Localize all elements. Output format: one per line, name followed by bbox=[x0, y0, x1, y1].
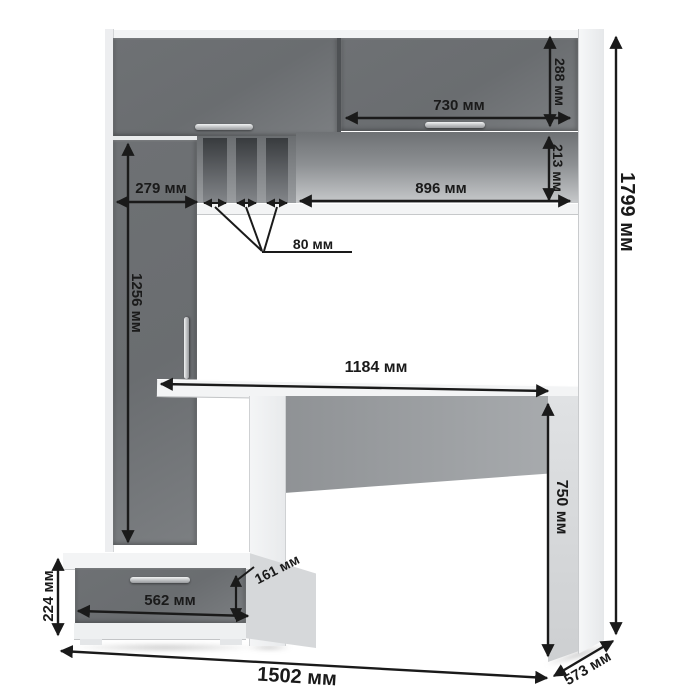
dim-label-1799: 1799 мм bbox=[617, 152, 637, 272]
hutch-left-door bbox=[113, 38, 338, 136]
dim-label-1502: 1502 мм bbox=[232, 663, 363, 691]
pedestal-foot-left bbox=[80, 639, 102, 645]
pigeonhole-slot-3 bbox=[266, 138, 288, 203]
dim-label-224: 224 мм bbox=[39, 546, 59, 646]
drawer-handle bbox=[130, 577, 190, 583]
dim-label-1184: 1184 мм bbox=[316, 358, 436, 378]
right-side-panel-front-edge bbox=[578, 29, 604, 654]
hutch-right-door bbox=[341, 38, 578, 131]
pedestal-foot-right bbox=[220, 639, 242, 645]
hutch-right-door-handle bbox=[425, 122, 485, 128]
pigeonhole-slot-2 bbox=[236, 138, 257, 203]
dim-label-750: 750 мм bbox=[551, 457, 571, 557]
shelf-board bbox=[197, 203, 578, 215]
dim-label-896: 896 мм bbox=[386, 179, 496, 199]
dim-label-279: 279 мм bbox=[106, 179, 216, 199]
dim-label-562: 562 мм bbox=[115, 591, 225, 611]
wardrobe-door-handle bbox=[184, 317, 189, 379]
dim-label-1256: 1256 мм bbox=[126, 253, 146, 353]
desk-dimension-diagram: 288 мм 730 мм 213 мм 896 мм 279 мм 1256 … bbox=[0, 0, 700, 700]
modesty-panel bbox=[284, 396, 548, 493]
dim-label-288: 288 мм bbox=[550, 42, 570, 122]
dim-label-213: 213 мм bbox=[548, 128, 568, 208]
dim-label-730: 730 мм bbox=[404, 96, 514, 116]
hutch-left-door-handle bbox=[195, 124, 253, 130]
pedestal-base bbox=[74, 623, 246, 640]
dim-label-80: 80 мм bbox=[268, 234, 358, 254]
